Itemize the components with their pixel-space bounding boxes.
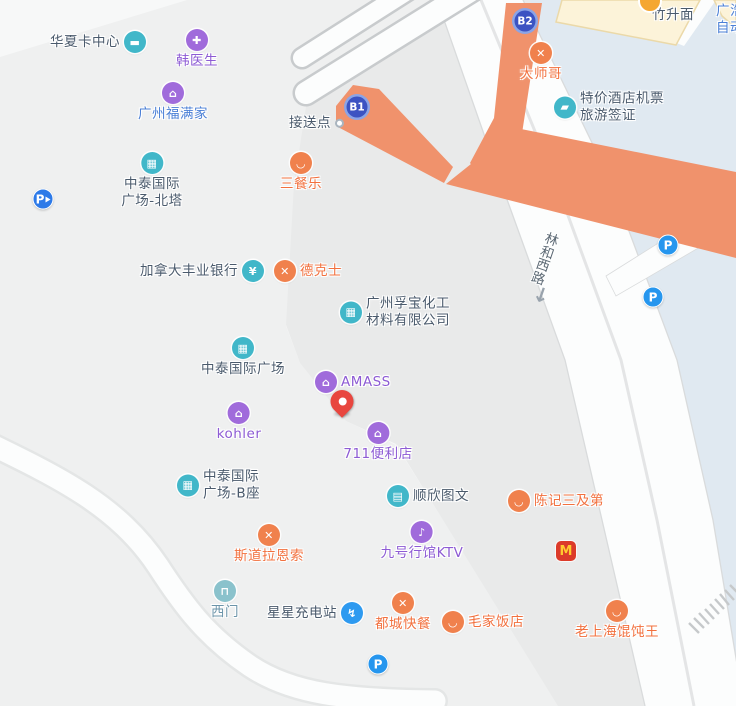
poi-ducheng[interactable]: ✕都城快餐 [375,592,431,633]
poi-zhongtai-b[interactable]: ▦中泰国际广场-B座 [177,469,260,502]
utensils-icon: ✕ [274,260,296,282]
parking-entrance[interactable]: P [33,189,54,210]
yen-icon: ¥ [242,260,264,282]
poi-label: 加拿大丰业银行 [140,263,238,280]
bowl-icon: ◡ [290,152,312,174]
utensils-icon: ✕ [530,42,552,64]
poi-dicos[interactable]: ✕德克士 [274,260,342,282]
subway-exit-b2[interactable]: B2 [515,11,536,32]
parking-icon: P [374,657,383,671]
poi-label: 九号行馆KTV [381,545,464,562]
poi-label: kohler [217,426,262,443]
store-icon: ⌂ [367,422,389,444]
poi-label: 德克士 [300,263,342,280]
poi-han-doctor[interactable]: ✚韩医生 [176,29,218,70]
bowl-icon: ◡ [508,490,530,512]
parking-east[interactable]: P [643,287,664,308]
poi-zhongtai-north-tower[interactable]: ▦中泰国际广场-北塔 [121,152,182,209]
medical-icon: ✚ [186,29,208,51]
poi-label: 星星充电站 [267,605,337,622]
poi-maojia[interactable]: ◡毛家饭店 [442,611,524,633]
entrance-arrow-icon [45,196,50,202]
poi-shunxin-print[interactable]: ▤顺欣图文 [387,485,469,507]
poi-label: 华夏卡中心 [50,34,120,51]
poi-label: 西门 [211,604,239,621]
utensils-icon: ✕ [258,524,280,546]
poi-jiuhao-ktv[interactable]: ♪九号行馆KTV [381,521,464,562]
bowl-icon: ◡ [606,600,628,622]
building-icon: ▦ [141,152,163,174]
poi-guanghao[interactable]: 广浩自动 [716,3,736,36]
spot-dot-icon [335,119,344,128]
bag-icon: ⌂ [228,402,250,424]
bag-icon: ⌂ [162,82,184,104]
poi-label: 斯道拉恩索 [234,548,304,565]
poi-label: 中泰国际广场 [201,361,285,378]
poi-layer: 华夏卡中心▬✚韩医生⌂广州福满家▦中泰国际广场-北塔◡三餐乐接送点加拿大丰业银行… [0,0,736,706]
poi-tejia-hotel-ticket[interactable]: ▰特价酒店机票旅游签证 [554,91,664,124]
poi-scotiabank[interactable]: 加拿大丰业银行¥ [140,260,264,282]
poi-ximen[interactable]: ⊓西门 [211,580,239,621]
ticket-icon: ▰ [554,96,576,118]
poi-guangzhou-fumanjia[interactable]: ⌂广州福满家 [138,82,208,123]
poi-fubao-chemical[interactable]: ▦广州孚宝化工材料有限公司 [340,296,450,329]
poi-label: 陈记三及第 [534,493,604,510]
poi-label: 广浩自动 [716,3,736,36]
poi-zhongtai-plaza[interactable]: ▦中泰国际广场 [201,337,285,378]
parking-icon: P [36,192,45,206]
mcdonalds[interactable]: M [556,541,576,561]
subway-exit-b1[interactable]: B1 [347,97,368,118]
poi-stora-enso[interactable]: ✕斯道拉恩索 [234,524,304,565]
location-pin[interactable] [331,390,354,413]
poi-sancanle[interactable]: ◡三餐乐 [280,152,322,193]
building-icon: ▦ [232,337,254,359]
bowl-icon: ◡ [442,611,464,633]
poi-label: 特价酒店机票旅游签证 [580,91,664,124]
parking-northeast[interactable]: P [658,235,679,256]
poi-label: 三餐乐 [280,176,322,193]
building-icon: ▦ [177,474,199,496]
card-icon: ▬ [124,31,146,53]
poi-label: 大师哥 [520,66,562,83]
poi-label: 毛家饭店 [468,614,524,631]
utensils-icon: ✕ [392,592,414,614]
poi-label: 中泰国际广场-北塔 [121,176,182,209]
door-icon: ⊓ [214,580,236,602]
poi-label: 711便利店 [343,446,412,463]
poi-label: 中泰国际广场-B座 [203,469,260,502]
poi-label: 都城快餐 [375,616,431,633]
poi-label: AMASS [341,374,391,391]
poi-kohler[interactable]: ⌂kohler [217,402,262,443]
poi-label: 广州孚宝化工材料有限公司 [366,296,450,329]
charge-icon: ↯ [341,602,363,624]
building-icon: ▦ [340,301,362,323]
poi-label: 接送点 [289,115,331,132]
poi-laoshanghai[interactable]: ◡老上海馄饨王 [575,600,659,641]
printer-icon: ▤ [387,485,409,507]
parking-south[interactable]: P [368,654,389,675]
pin-icon [326,385,359,418]
poi-huaxia-card-center[interactable]: 华夏卡中心▬ [50,31,146,53]
mic-icon: ♪ [411,521,433,543]
poi-jiesongdian[interactable]: 接送点 [289,115,344,132]
parking-icon: P [649,290,658,304]
poi-xingxing-charging[interactable]: 星星充电站↯ [267,602,363,624]
poi-label: 广州福满家 [138,106,208,123]
poi-chenji[interactable]: ◡陈记三及第 [508,490,604,512]
poi-label: 顺欣图文 [413,488,469,505]
poi-dashige[interactable]: ✕大师哥 [520,42,562,83]
poi-711-store[interactable]: ⌂711便利店 [343,422,412,463]
poi-label: 韩医生 [176,53,218,70]
poi-label: 老上海馄饨王 [575,624,659,641]
parking-icon: P [664,238,673,252]
